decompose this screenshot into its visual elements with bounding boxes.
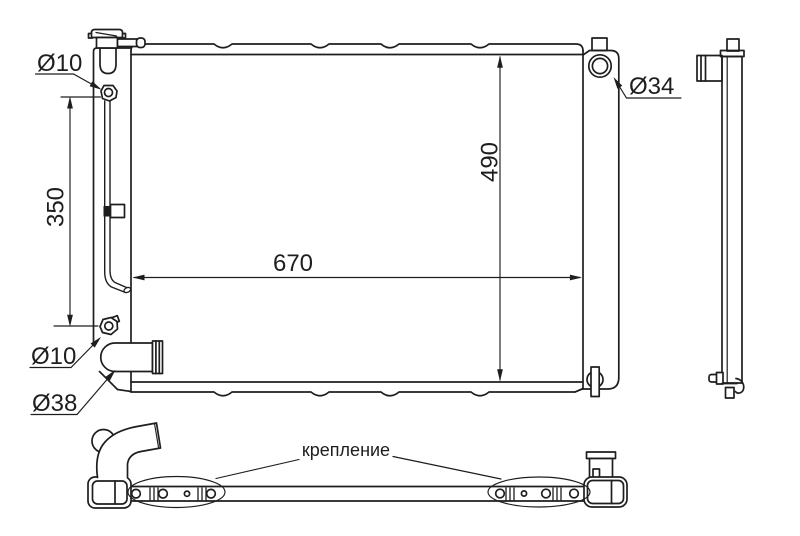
left-end-block	[88, 477, 131, 508]
mounting-label: крепление	[302, 440, 390, 460]
drawing-canvas: 490 670 350 Ø10 Ø34	[0, 0, 800, 536]
bottom-fitting	[100, 316, 119, 335]
front-view: 490 670 350 Ø10 Ø34	[30, 30, 681, 418]
arrow-up-icon	[497, 56, 503, 68]
mounting-hole-small	[521, 491, 526, 496]
core-inner-lines	[131, 55, 583, 383]
mounting-hole	[132, 489, 141, 498]
mounting-hole	[542, 489, 551, 498]
overflow-tube	[104, 101, 132, 294]
outlet-elbow	[92, 423, 161, 479]
drain-plug	[587, 367, 603, 397]
dim-core-height: 490	[477, 56, 504, 382]
side-bracket-ribs	[701, 56, 706, 82]
drain-plug-stem	[591, 367, 599, 397]
leader-arrow-icon	[90, 81, 102, 89]
mounting-hole	[496, 489, 505, 498]
leader-arrow-icon	[614, 77, 623, 89]
dim-fitting-span-label: 350	[43, 187, 70, 227]
arrow-right-icon	[570, 275, 582, 281]
bottom-view: крепление	[88, 423, 627, 508]
arrow-down-icon	[67, 315, 73, 327]
dim-fitting-span: 350	[43, 97, 101, 327]
cap-body	[97, 38, 118, 49]
side-view	[697, 39, 744, 398]
core-side-edges	[131, 51, 583, 393]
right-upright-block	[587, 452, 616, 478]
top-fitting	[101, 86, 117, 102]
arrow-down-icon	[497, 369, 503, 381]
callout-outlet-pipe: Ø38	[31, 370, 116, 417]
right-tank	[575, 38, 619, 397]
overflow-tube-lines	[105, 101, 127, 293]
dia-filler-opening-label: Ø34	[629, 73, 674, 100]
dim-core-width: 670	[133, 250, 582, 280]
radiator-technical-drawing: 490 670 350 Ø10 Ø34	[0, 0, 800, 536]
tube-bracket	[111, 205, 125, 218]
cap-top	[92, 30, 123, 38]
dim-core-width-label: 670	[273, 250, 313, 277]
mounting-bar	[131, 487, 584, 502]
outlet-pipe	[101, 341, 163, 374]
filler-neck	[100, 48, 116, 74]
dia-outlet-pipe-label: Ø38	[32, 390, 77, 417]
dim-core-height-label: 490	[477, 142, 504, 182]
overflow-pipe-end	[137, 38, 146, 48]
mounting-hole	[207, 489, 216, 498]
core-top-edge	[131, 44, 583, 51]
callout-bottom-fitting: Ø10	[30, 337, 101, 370]
core-bottom-edge	[131, 389, 583, 396]
radiator-cap	[89, 30, 146, 49]
overflow-pipe	[118, 39, 138, 47]
tube-clip	[104, 206, 111, 217]
arrow-left-icon	[133, 275, 145, 281]
upright-flange	[587, 452, 616, 459]
dia-bottom-fitting-label: Ø10	[31, 343, 76, 370]
outlet-pipe-body	[101, 343, 153, 372]
tank-core-joint	[575, 389, 583, 392]
side-top-tab	[727, 39, 739, 51]
right-tank-top-tab	[592, 38, 607, 51]
radiator-core	[131, 44, 583, 396]
outlet-pipe-end	[153, 341, 163, 374]
side-foot-tab	[726, 388, 735, 399]
callout-filler-opening: Ø34	[614, 73, 682, 100]
side-bottom-collar	[717, 373, 724, 385]
dia-top-fitting-label: Ø10	[37, 50, 82, 77]
mounting-hole	[159, 489, 168, 498]
callout-top-fitting: Ø10	[36, 50, 102, 90]
mounting-hole-small	[184, 491, 189, 496]
side-body	[722, 57, 742, 384]
mounting-holes	[132, 489, 579, 498]
mounting-hole	[570, 489, 579, 498]
right-tank-outline	[583, 51, 619, 390]
bottom-fitting-body	[100, 318, 118, 335]
arrow-up-icon	[67, 97, 73, 109]
